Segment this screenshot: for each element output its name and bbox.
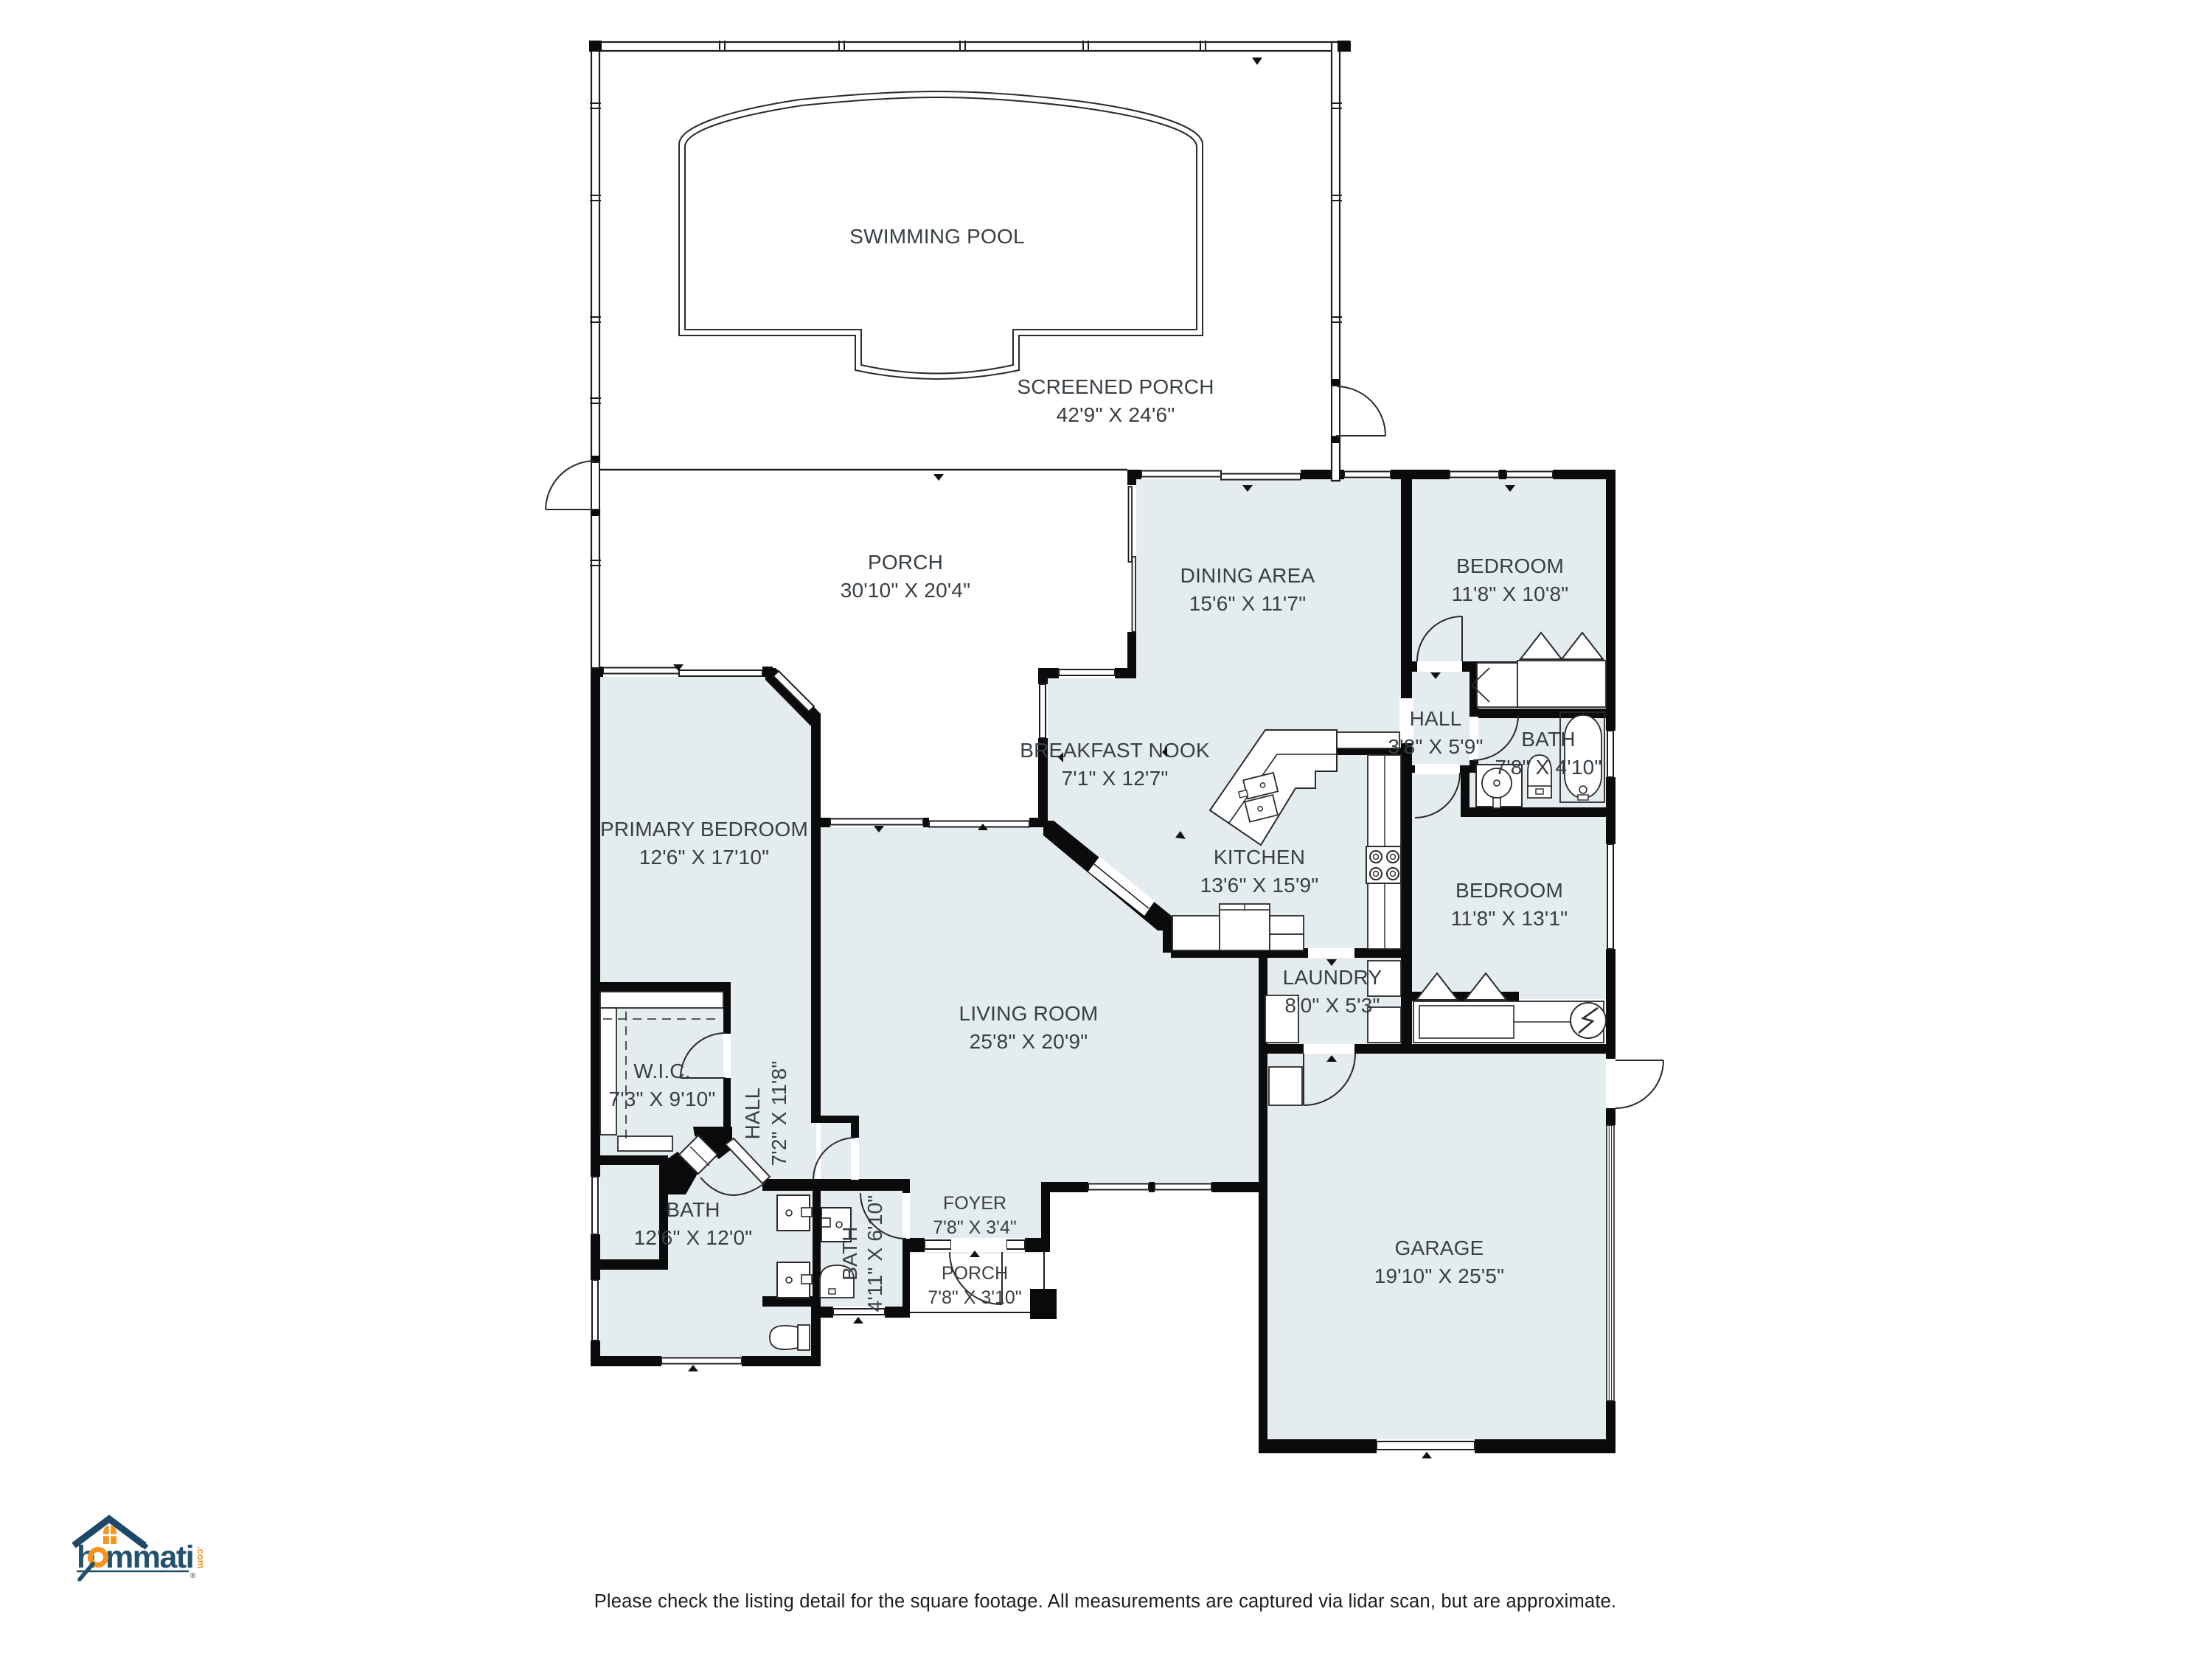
svg-text:SCREENED PORCH: SCREENED PORCH <box>1017 375 1214 398</box>
svg-text:7'1" X 12'7": 7'1" X 12'7" <box>1061 767 1168 790</box>
svg-text:4'11" X 6'10": 4'11" X 6'10" <box>863 1195 886 1312</box>
svg-text:LIVING ROOM: LIVING ROOM <box>959 1002 1099 1025</box>
svg-text:HALL: HALL <box>741 1088 764 1140</box>
svg-text:BREAKFAST NOOK: BREAKFAST NOOK <box>1020 739 1210 762</box>
svg-text:.com: .com <box>195 1546 206 1568</box>
svg-text:KITCHEN: KITCHEN <box>1214 846 1305 869</box>
svg-text:GARAGE: GARAGE <box>1394 1237 1484 1259</box>
svg-text:BATH: BATH <box>666 1198 720 1221</box>
svg-text:7'3" X 9'10": 7'3" X 9'10" <box>608 1088 715 1110</box>
svg-text:7'8" X 3'10": 7'8" X 3'10" <box>928 1287 1021 1308</box>
svg-text:19'10" X 25'5": 19'10" X 25'5" <box>1374 1265 1505 1287</box>
svg-text:PORCH: PORCH <box>942 1263 1008 1284</box>
svg-text:15'6" X 11'7": 15'6" X 11'7" <box>1189 592 1307 615</box>
svg-text:BATH: BATH <box>1521 728 1575 751</box>
svg-text:W.I.C.: W.I.C. <box>633 1060 690 1082</box>
svg-text:BEDROOM: BEDROOM <box>1455 879 1563 902</box>
svg-text:7'8" X 3'4": 7'8" X 3'4" <box>933 1217 1016 1238</box>
svg-text:12'6" X 12'0": 12'6" X 12'0" <box>634 1226 753 1249</box>
svg-text:42'9" X 24'6": 42'9" X 24'6" <box>1057 403 1175 426</box>
svg-text:mmati: mmati <box>105 1540 193 1575</box>
svg-text:7'2" X 11'8": 7'2" X 11'8" <box>768 1061 790 1166</box>
svg-text:7'8" X 4'10": 7'8" X 4'10" <box>1495 756 1601 779</box>
svg-text:11'8" X 10'8": 11'8" X 10'8" <box>1452 582 1569 605</box>
svg-text:13'6" X 15'9": 13'6" X 15'9" <box>1200 874 1319 897</box>
svg-text:BEDROOM: BEDROOM <box>1456 554 1564 577</box>
svg-text:BATH: BATH <box>838 1226 861 1280</box>
svg-text:HALL: HALL <box>1410 707 1462 730</box>
svg-text:3'8" X 5'9": 3'8" X 5'9" <box>1388 735 1483 758</box>
svg-text:SWIMMING POOL: SWIMMING POOL <box>849 225 1025 248</box>
svg-text:PORCH: PORCH <box>868 551 943 574</box>
svg-text:®: ® <box>190 1572 196 1580</box>
svg-text:11'8" X 13'1": 11'8" X 13'1" <box>1451 907 1568 930</box>
svg-text:PRIMARY BEDROOM: PRIMARY BEDROOM <box>600 818 808 841</box>
svg-text:12'6" X 17'10": 12'6" X 17'10" <box>639 846 770 869</box>
svg-text:DINING AREA: DINING AREA <box>1180 564 1315 587</box>
svg-text:Please check the listing detai: Please check the listing detail for the … <box>594 1591 1617 1612</box>
svg-text:30'10" X 20'4": 30'10" X 20'4" <box>841 579 971 602</box>
svg-text:8'0" X 5'3": 8'0" X 5'3" <box>1284 994 1380 1017</box>
svg-text:LAUNDRY: LAUNDRY <box>1283 966 1382 989</box>
svg-text:FOYER: FOYER <box>943 1193 1006 1214</box>
svg-text:25'8" X 20'9": 25'8" X 20'9" <box>970 1030 1088 1053</box>
